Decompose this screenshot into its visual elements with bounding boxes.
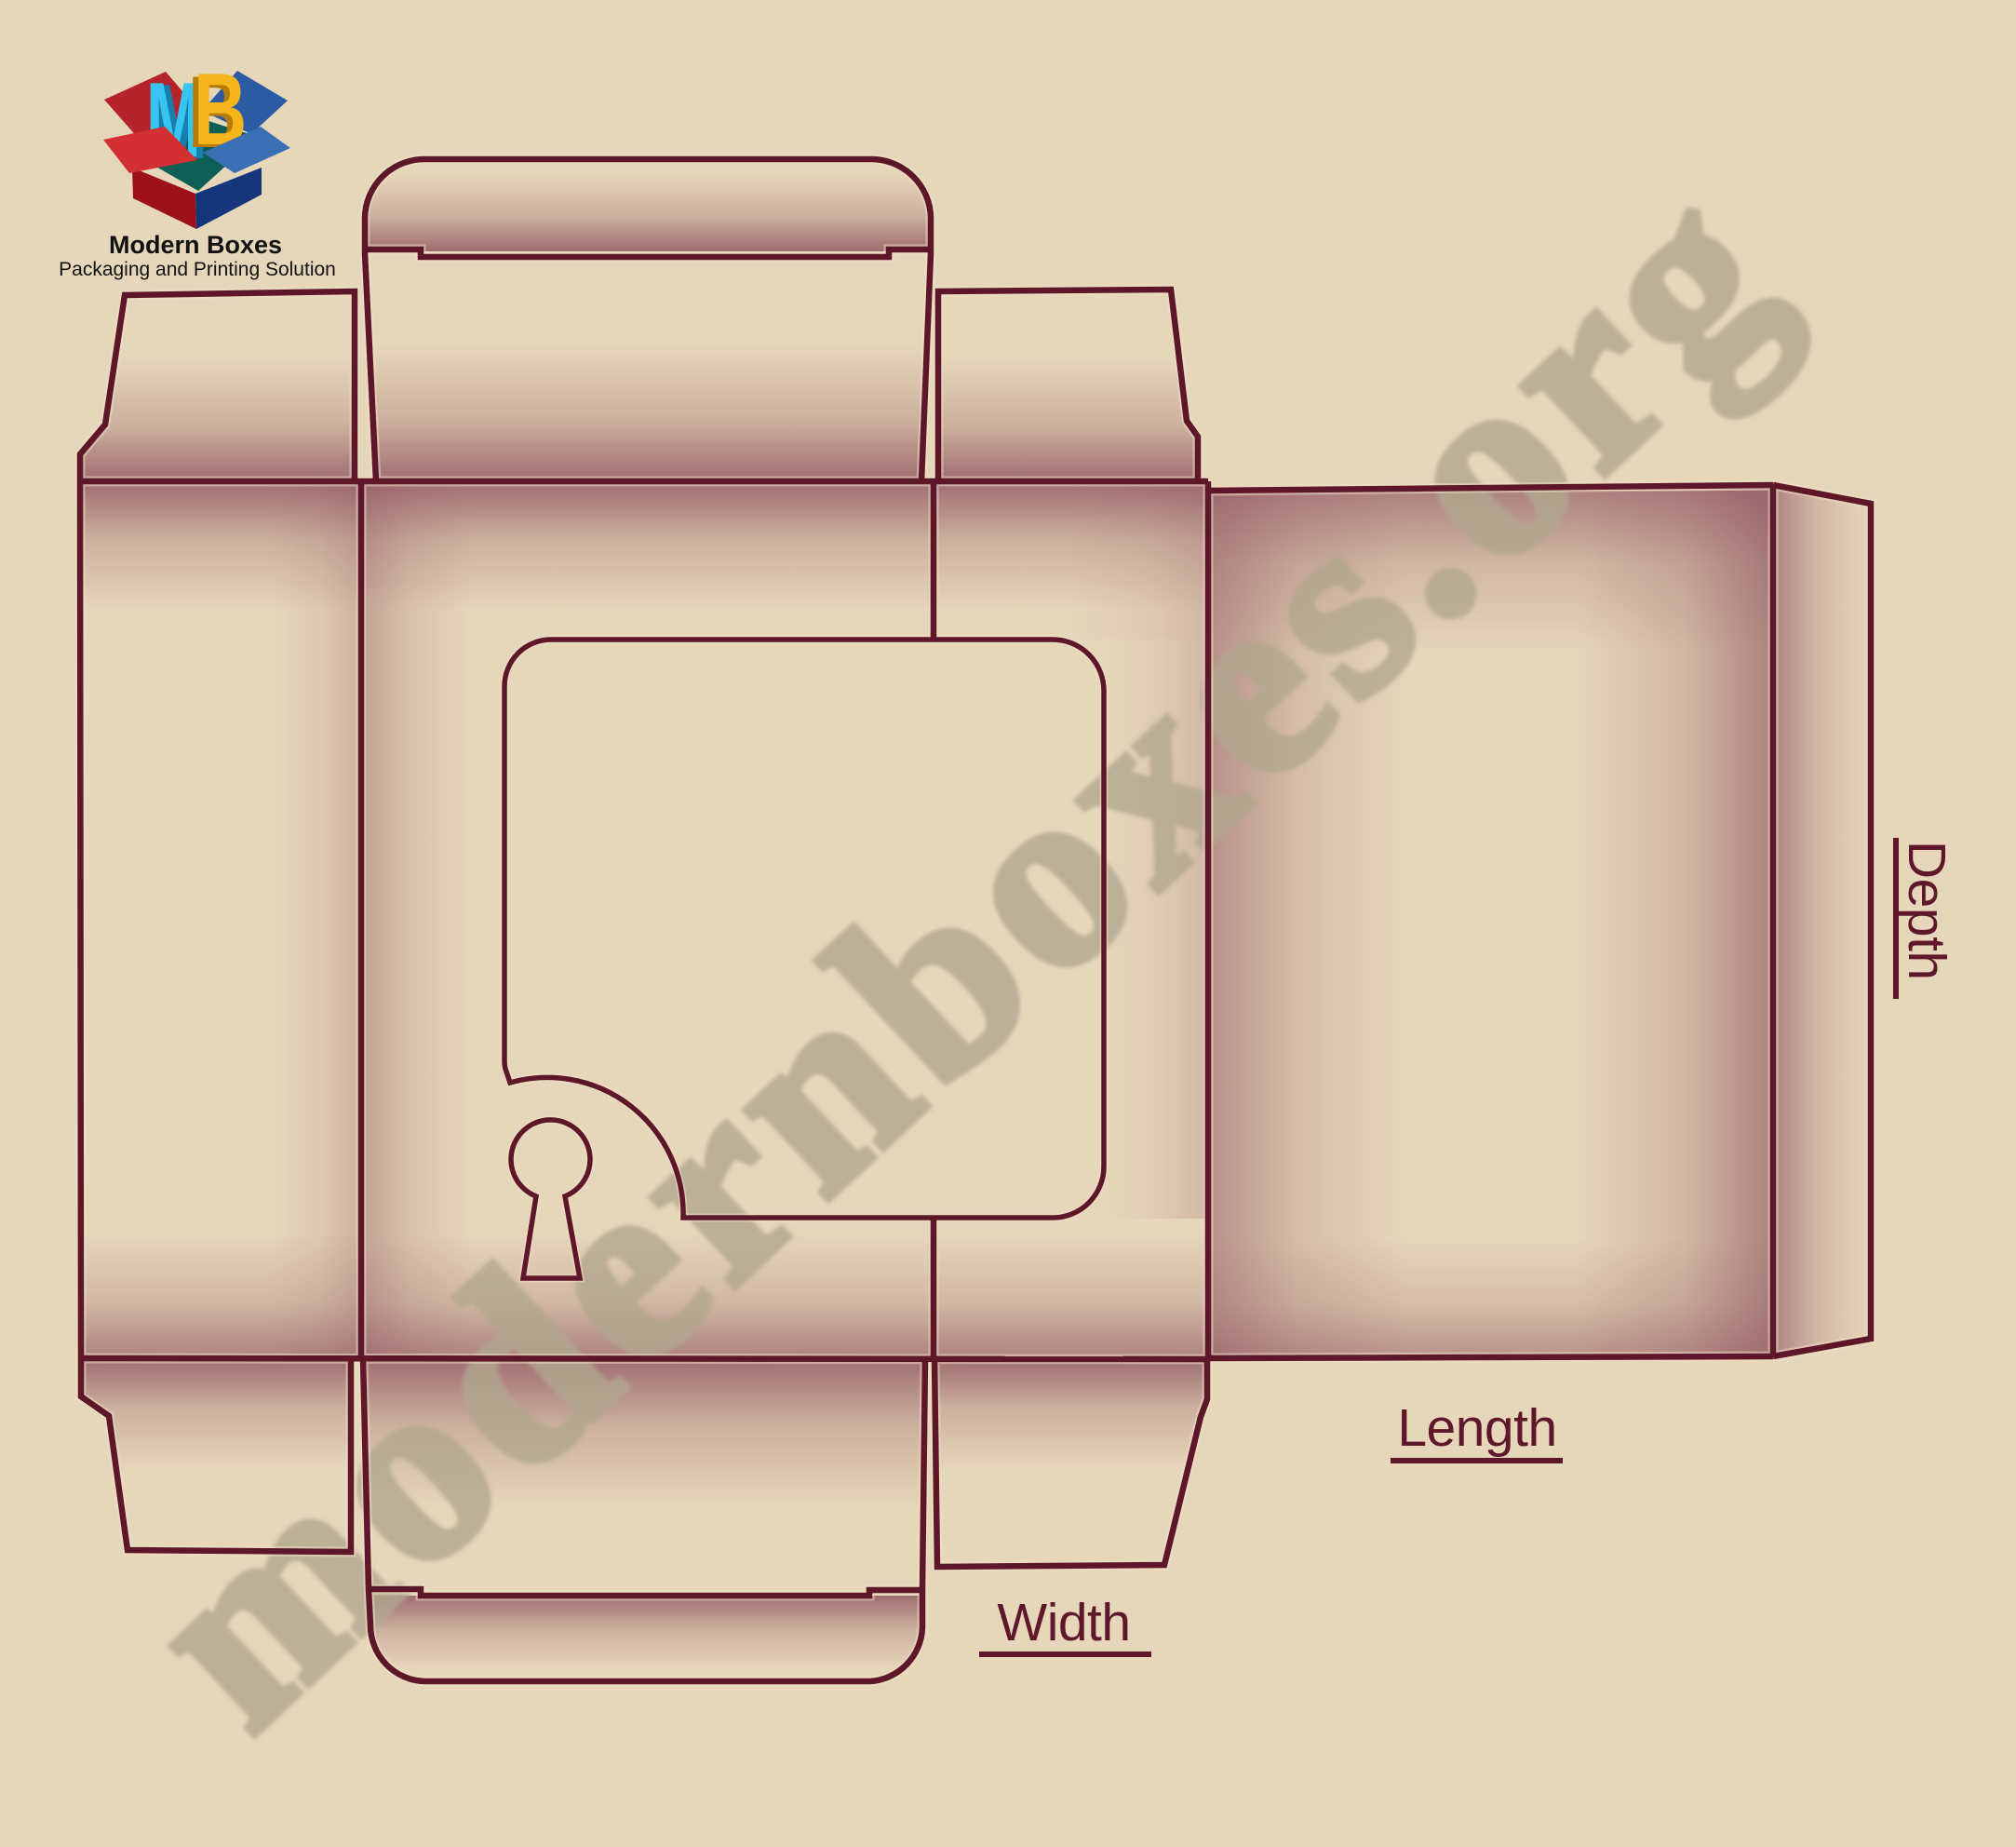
svg-text:Length: Length (1397, 1398, 1556, 1458)
svg-text:Depth: Depth (1897, 841, 1956, 980)
svg-text:Modern Boxes: Modern Boxes (109, 231, 282, 259)
svg-text:Packaging and Printing Solutio: Packaging and Printing Solution (59, 259, 336, 280)
svg-text:Width: Width (997, 1593, 1130, 1652)
